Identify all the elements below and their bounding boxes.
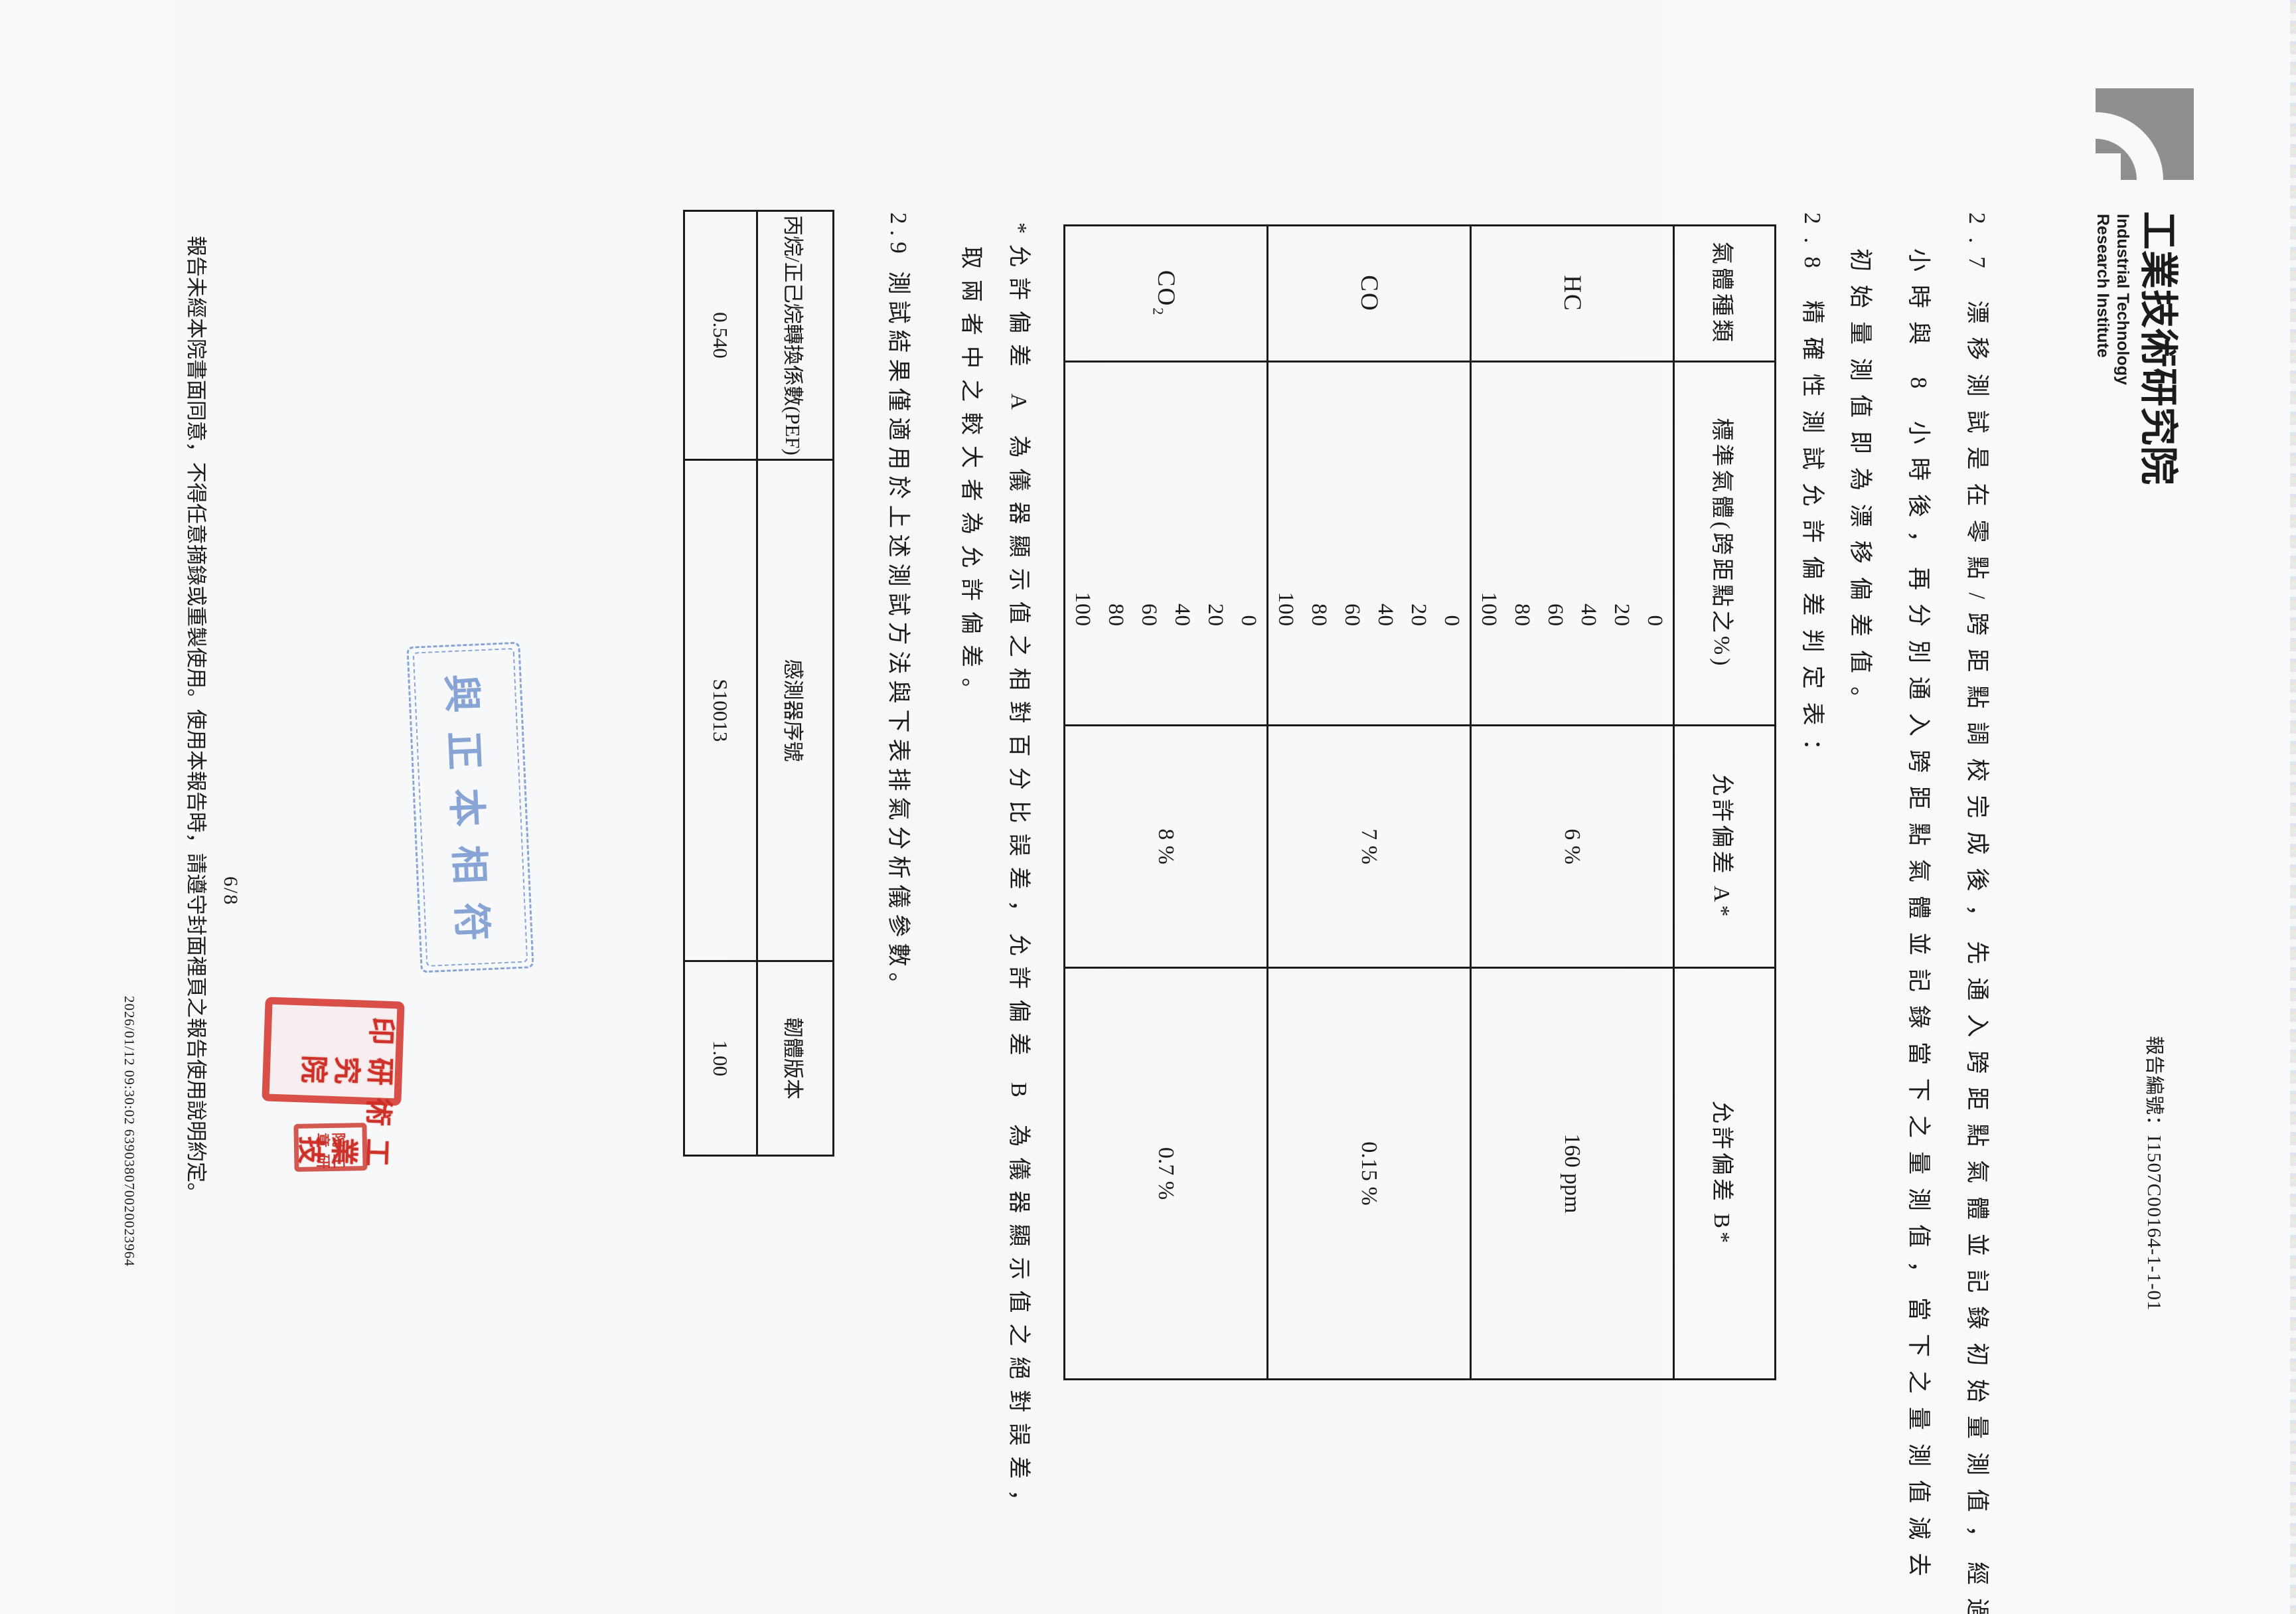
section-2-7-line1: 2.7 漂移測試是在零點/跨距點調校完成後，先通入跨距點氣體並記錄初始量測值，經…: [1962, 212, 1996, 1614]
span-point-list: 0 20 40 60 80 100: [1473, 579, 1672, 627]
table-row-co2-tolerance-b: 0.7 %: [1065, 967, 1268, 1378]
section-2-9-heading: 2.9 測試結果僅適用於上述測試方法與下表排氣分析儀參數。: [883, 212, 917, 1002]
certified-copy-stamp: 與正本相符: [406, 642, 534, 973]
footnote-line2: 取兩者中之較大者為允許偏差。: [957, 246, 990, 711]
span-point-value: 40: [1369, 579, 1403, 627]
section-2-7-line2: 小時與 8 小時後，再分別通入跨距點氣體並記錄當下之量測值，當下之量測值減去: [1904, 248, 1938, 1589]
tolerance-table-header-gas: 氣體種類: [1675, 226, 1774, 361]
footnote-line1: *允許偏差 A 為儀器顯示值之相對百分比誤差，允許偏差 B 為儀器顯示值之絕對誤…: [1005, 222, 1037, 1522]
span-point-value: 40: [1166, 579, 1199, 627]
table-row-hc-tolerance-a: 6 %: [1472, 724, 1675, 967]
official-seal-small-right-column: 工研: [315, 1149, 347, 1171]
report-number: 報告編號：I1507C00164-1-1-01: [2142, 1036, 2170, 1311]
table-row-co-tolerance-a: 7 %: [1268, 724, 1472, 967]
institute-name-en: Industrial Technology Research Institute: [2093, 214, 2133, 385]
span-point-value: 80: [1506, 579, 1539, 627]
span-point-list: 0 20 40 60 80 100: [1067, 579, 1266, 627]
span-point-value: 60: [1336, 579, 1369, 627]
span-point-value: 60: [1133, 579, 1166, 627]
table-row-hc-standards: 0 20 40 60 80 100: [1472, 361, 1675, 724]
analyzer-value-firmware: 1.00: [685, 960, 758, 1155]
span-point-list: 0 20 40 60 80 100: [1270, 579, 1469, 627]
analyzer-parameter-table: 丙烷/正己烷轉換係數(PEF) 感測器序號 韌體版本 0.540 S10013 …: [683, 210, 834, 1157]
itri-logo: [2096, 88, 2194, 180]
span-point-value: 0: [1436, 579, 1469, 627]
analyzer-header-sensor-serial: 感測器序號: [758, 459, 832, 960]
span-point-value: 0: [1233, 579, 1266, 627]
tolerance-table: 氣體種類 標準氣體(跨距點之%) 允許偏差 A* 允許偏差 B* HC 0 20…: [1063, 224, 1776, 1380]
official-seal-large: 工業技術 研究院印: [262, 997, 404, 1105]
report-document-rotated: 工業技術研究院 Industrial Technology Research I…: [0, 0, 2296, 1614]
institute-name-en-line1: Industrial Technology: [2113, 214, 2133, 385]
table-row-hc-tolerance-b: 160 ppm: [1472, 967, 1675, 1378]
certified-copy-stamp-frame: 與正本相符: [413, 648, 528, 967]
institute-name-en-line2: Research Institute: [2093, 214, 2113, 385]
table-row-hc-gas: HC: [1472, 226, 1675, 361]
official-seal-small: 工研 院章: [293, 1123, 367, 1172]
section-2-7-line3: 初始量測值即為漂移偏差值。: [1845, 248, 1879, 723]
table-row-co-tolerance-b: 0.15 %: [1268, 967, 1472, 1378]
span-point-value: 100: [1473, 579, 1506, 627]
table-row-co-standards: 0 20 40 60 80 100: [1268, 361, 1472, 724]
tolerance-table-header-tolerance-a: 允許偏差 A*: [1675, 724, 1774, 967]
tolerance-table-header-tolerance-b: 允許偏差 B*: [1675, 967, 1774, 1378]
analyzer-header-pef: 丙烷/正己烷轉換係數(PEF): [758, 212, 832, 459]
span-point-value: 60: [1539, 579, 1572, 627]
analyzer-value-sensor-serial: S10013: [685, 459, 758, 960]
scanner-edge-artifact: [2290, 0, 2296, 1614]
footer-notice: 報告未經本院書面同意，不得任意摘錄或重製使用。使用本報告時，請遵守封面裡頁之報告…: [183, 236, 213, 1203]
span-point-value: 20: [1403, 579, 1436, 627]
table-row-co-gas: CO: [1268, 226, 1472, 361]
print-timestamp-serial: 2026/01/12 09:30:02 639038070020023964: [121, 996, 137, 1267]
table-row-co2-gas: CO₂: [1065, 226, 1268, 361]
span-point-value: 80: [1303, 579, 1336, 627]
analyzer-value-pef: 0.540: [685, 212, 758, 459]
section-2-8-heading: 2.8 精確性測試允許偏差判定表：: [1798, 212, 1831, 775]
table-row-co2-tolerance-a: 8 %: [1065, 724, 1268, 967]
span-point-value: 100: [1270, 579, 1303, 627]
span-point-value: 100: [1067, 579, 1100, 627]
itri-logo-notch: [2096, 153, 2121, 180]
span-point-value: 20: [1199, 579, 1233, 627]
span-point-value: 40: [1572, 579, 1606, 627]
page-number: 6/8: [219, 876, 242, 906]
span-point-value: 80: [1100, 579, 1133, 627]
institute-name-zh: 工業技術研究院: [2134, 211, 2190, 485]
official-seal-small-left-column: 院章: [314, 1128, 346, 1150]
table-row-co2-standards: 0 20 40 60 80 100: [1065, 361, 1268, 724]
span-point-value: 0: [1639, 579, 1672, 627]
scanned-report-page: 工業技術研究院 Industrial Technology Research I…: [0, 0, 2296, 1614]
span-point-value: 20: [1606, 579, 1639, 627]
analyzer-header-firmware: 韌體版本: [758, 960, 832, 1155]
certified-copy-stamp-text: 與正本相符: [436, 654, 505, 960]
official-seal-large-left-column: 研究院印: [269, 1005, 397, 1089]
tolerance-table-header-standard: 標準氣體(跨距點之%): [1675, 361, 1774, 724]
